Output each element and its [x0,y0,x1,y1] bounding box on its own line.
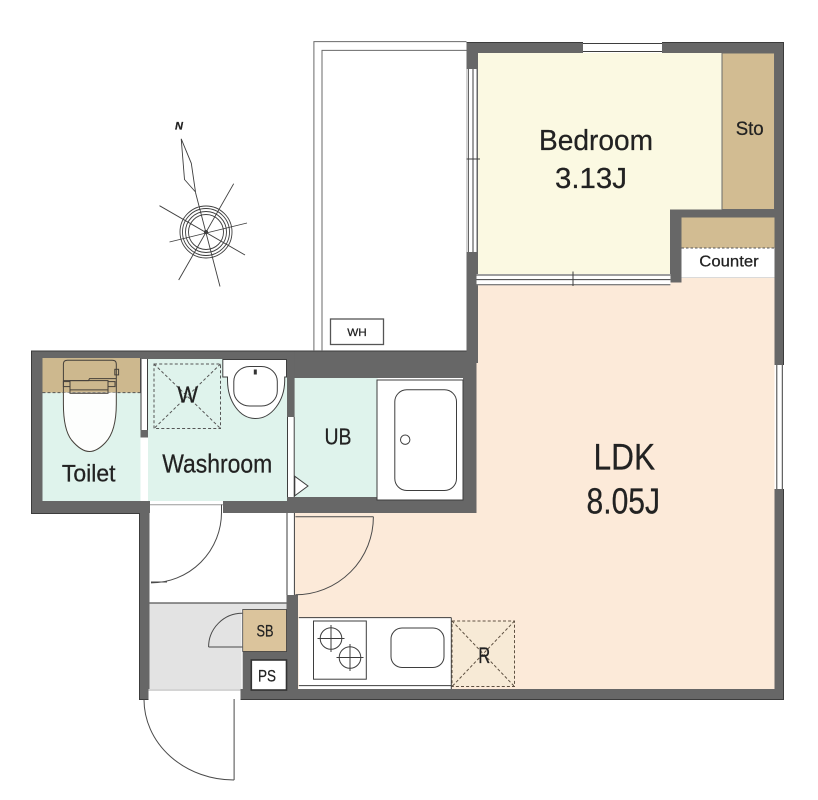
svg-text:W: W [177,382,198,408]
svg-text:3.13J: 3.13J [555,163,627,195]
svg-text:Sto: Sto [736,119,764,140]
svg-text:Bedroom: Bedroom [539,125,653,157]
svg-text:Washroom: Washroom [162,449,272,479]
svg-text:UB: UB [325,424,352,450]
svg-text:N: N [175,121,184,133]
svg-text:8.05J: 8.05J [587,480,661,521]
svg-text:Toilet: Toilet [62,461,116,488]
svg-text:Counter: Counter [699,253,758,270]
svg-text:R: R [478,643,490,668]
svg-text:WH: WH [347,327,367,339]
svg-text:SB: SB [257,623,274,641]
svg-text:PS: PS [258,668,276,686]
svg-text:LDK: LDK [594,436,656,478]
